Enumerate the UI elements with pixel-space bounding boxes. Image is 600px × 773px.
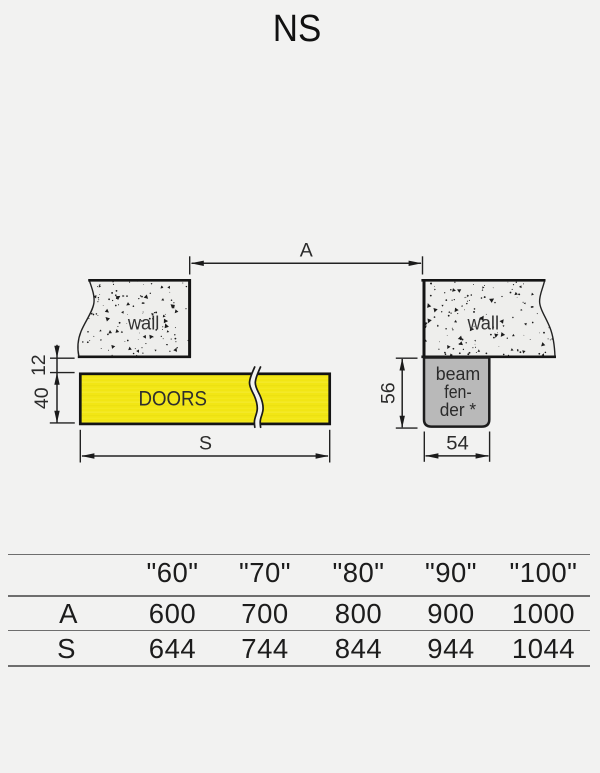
svg-text:DOORS: DOORS (139, 387, 208, 411)
svg-text:12: 12 (28, 354, 50, 376)
svg-text:A: A (300, 240, 313, 262)
svg-text:wall: wall (127, 313, 159, 334)
svg-text:40: 40 (31, 387, 53, 409)
svg-text:54: 54 (446, 433, 469, 455)
svg-text:wall: wall (467, 313, 499, 334)
svg-text:56: 56 (378, 382, 400, 404)
svg-text:der *: der * (440, 400, 476, 420)
svg-text:S: S (199, 433, 212, 455)
svg-text:beam: beam (436, 364, 481, 384)
